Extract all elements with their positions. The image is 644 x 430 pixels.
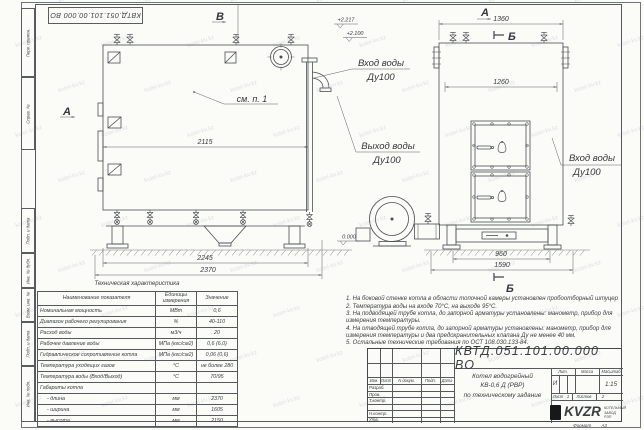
drawing-sheet: kotel-kv.kzkotel-kv.kzkotel-kv.kzkotel-k… [0, 0, 644, 430]
document-designation: КВТД.051.101.00.000 ВО [455, 349, 622, 367]
sheet-value: 1 [564, 393, 572, 400]
row-empty [369, 404, 392, 410]
col-izm: Изм. [368, 377, 380, 384]
outlet-label: Выход воды [361, 141, 414, 152]
outlet-dn: Ду100 [372, 155, 401, 166]
top-valve [233, 35, 239, 46]
table-row: Температура воды (Вход/Выход)°С70/95 [38, 372, 238, 383]
view-marker-a-front: А [480, 7, 489, 19]
product-title: Котел водогрейный КВ-0,6 Д (РВР) по техн… [454, 370, 551, 402]
table-row: Диапазон рабочего регулирования%40-110 [38, 317, 238, 328]
elevation-zero: 0.000 [342, 235, 357, 241]
lit-value: И [551, 375, 559, 393]
format-value: А3 [601, 423, 607, 428]
note-line: 4. На отводящей трубе котла, до запорной… [346, 326, 622, 340]
note-line: 2. Температура воды на входе 70°С, на вы… [346, 304, 622, 311]
scale-value: 1:15 [599, 375, 623, 393]
row-tkontr: Т.контр. [369, 398, 392, 404]
door-handle [477, 146, 491, 149]
inlet-top-label: Вход воды [358, 58, 404, 69]
table-row: - длинамм2370 [38, 394, 238, 405]
top-valve [541, 33, 547, 44]
format-label: Формат [573, 423, 591, 428]
technical-notes: 1. На боковой стенке котла в области топ… [346, 296, 622, 348]
col-list: Лист [380, 377, 392, 384]
product-title-line1: Котел водогрейный [472, 372, 533, 381]
note-line: 1. На боковой стенке котла в области топ… [346, 296, 622, 303]
drain-valve [114, 210, 120, 224]
blower-fan [356, 197, 440, 247]
table-row: Номинальная мощностьМВт0,6 [38, 306, 238, 317]
product-title-line3: по техническому задание [464, 391, 542, 400]
side-drain-valve [568, 216, 574, 227]
drain-valve [193, 210, 199, 224]
inlet-top-dn: Ду100 [366, 72, 395, 83]
section-marker-b-top: Б [508, 31, 516, 43]
tech-characteristics-table: Наименование показателя Единицы измерени… [37, 291, 238, 427]
front-base-frame [443, 225, 561, 249]
table-row: Габариты котла [38, 383, 238, 394]
drain-valve [240, 210, 246, 224]
dim-2115: 2115 [196, 139, 212, 146]
leaders-and-marks [60, 5, 621, 281]
table-row: - ширинамм1605 [38, 405, 238, 416]
ground-line [90, 250, 590, 256]
elevation-2217: +2.217 [338, 18, 356, 24]
top-valve [114, 35, 120, 46]
duct-valve [425, 214, 431, 225]
table-row: Температура уходящих газов°Сне более 280 [38, 361, 238, 372]
table-row: - высотамм2150 [38, 416, 238, 427]
dim-1360: 1360 [493, 16, 509, 23]
note-line: 3. На подводящей трубе котла, до запорно… [346, 311, 622, 325]
sheets-value: 2 [596, 393, 610, 400]
col-data: Дата [440, 377, 454, 384]
dim-960: 960 [495, 251, 507, 258]
section-marker-b-bottom: Б [506, 283, 514, 295]
support-frame [106, 226, 305, 248]
title-block: КВТД.051.101.00.000 ВО Изм. Лист N докум… [367, 348, 622, 422]
mass-header: Масса [575, 369, 599, 376]
kvzr-logo-text: KVZR [561, 401, 604, 421]
logo-line1: КОТЕЛЬНЫЙ [604, 406, 623, 411]
top-valve [127, 35, 133, 46]
logo-line2: ЗАВОД РЭП [604, 411, 623, 420]
top-valve [288, 35, 294, 46]
table-row: Расход водым3/ч20 [38, 328, 238, 339]
see-item-note: см. п. 1 [237, 94, 268, 104]
top-flange-hatch [268, 44, 295, 71]
row-prov: Пров. [369, 391, 392, 397]
sheet-label: Лист [552, 393, 564, 400]
col-header-units: Единицы измерения [156, 292, 197, 306]
table-header-row: Наименование показателя Единицы измерени… [38, 292, 238, 306]
boiler-side-view [98, 35, 331, 249]
view-marker-a-side: А [62, 106, 71, 118]
tech-table-title: Техническая характеристика [37, 281, 237, 287]
sheets-label: Листов [573, 393, 595, 400]
kvzr-logo-subtext: КОТЕЛЬНЫЙ ЗАВОД РЭП [604, 406, 623, 420]
door-latch [498, 142, 506, 153]
pipe-drain-valve [307, 212, 313, 226]
side-flanges [432, 47, 570, 68]
upper-furnace-door [471, 121, 530, 170]
elevation-2100: +2.100 [347, 31, 365, 37]
row-razrab: Разраб. [369, 385, 392, 391]
dim-1590: 1590 [494, 262, 510, 269]
drain-valve [147, 210, 153, 224]
table-row: Гидравлическое сопротивление котлаМПа (к… [38, 350, 238, 361]
dim-1260: 1260 [493, 79, 509, 86]
col-header-value: Значение [197, 292, 238, 306]
top-valve [450, 33, 456, 44]
drawing-texts: 2115 2245 2370 1360 1260 960 1590 А В А … [62, 7, 615, 295]
door-latch [498, 191, 506, 202]
door-handle [477, 196, 491, 199]
format-note: Формат А3 [560, 423, 620, 428]
top-valve [463, 33, 469, 44]
dim-2370: 2370 [199, 267, 216, 274]
row-utv: Утв. [369, 417, 392, 423]
dimension-lines [95, 20, 573, 279]
kvzr-logo-emblem [550, 405, 561, 420]
inlet-right-dn: Ду100 [572, 167, 601, 178]
rear-water-pipe [302, 58, 331, 212]
dim-2245: 2245 [196, 255, 213, 262]
lower-furnace-door [471, 172, 530, 222]
col-header-name: Наименование показателя [38, 292, 156, 306]
table-row: Рабочее давление водыМПа (кгс/см2)0,6 (6… [38, 339, 238, 350]
inlet-right-label: Вход воды [569, 153, 615, 164]
col-podp: Подп. [421, 377, 440, 384]
col-ndocum: N докум. [392, 377, 421, 384]
product-title-line2: КВ-0,6 Д (РВР) [480, 381, 524, 390]
view-marker-b-top: В [216, 11, 224, 23]
